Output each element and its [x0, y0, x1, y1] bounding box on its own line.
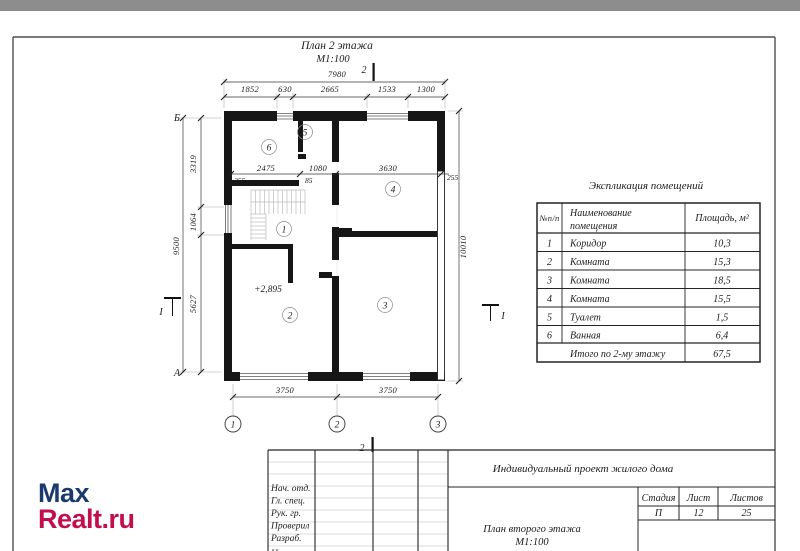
drawing-title: План второго этажа [482, 524, 581, 535]
section-marks: 2 2 I I [158, 63, 505, 454]
cell-num: 1 [547, 239, 552, 250]
explication-title: Экспликация помещений [589, 180, 704, 192]
drawing-scale: М1:100 [514, 537, 549, 548]
dims-top: 7980 1852 630 2665 1533 1300 [221, 69, 448, 108]
sheet-value: 12 [694, 508, 704, 519]
stage-label: Стадия [642, 493, 676, 504]
sheets-label: Листов [729, 493, 763, 504]
title-block: Индивидуальный проект жилого дома Стадия… [268, 450, 775, 551]
dim-label: 1852 [241, 84, 260, 94]
top-strip [0, 0, 800, 11]
staircase [251, 190, 305, 240]
dims-left: 3319 1064 5627 9500 Б А [171, 113, 224, 379]
plan-title: План 2 этажа [300, 40, 373, 52]
cell-name: Комната [569, 257, 610, 268]
dim-label: 3630 [378, 163, 398, 173]
drawing-sheet: План 2 этажа М1:100 [0, 0, 800, 551]
role-label: Разраб. [270, 533, 302, 544]
section-label: I [500, 311, 505, 322]
project-name: Индивидуальный проект жилого дома [492, 463, 674, 475]
dim-label: 1533 [378, 84, 396, 94]
dim-wall-thickness: 255 [447, 173, 459, 182]
dim-small: 255 [234, 176, 246, 185]
stage-value: П [654, 508, 663, 519]
table-row: 5 Туалет 1,5 [547, 313, 728, 324]
role-label: Гл. спец. [270, 497, 305, 507]
dim-right-overall: 10010 [458, 235, 468, 258]
interior-walls [231, 121, 437, 372]
table-row: 6 Ванная 6,4 [547, 331, 728, 342]
cell-name: Комната [569, 294, 610, 305]
cell-area: 18,5 [713, 276, 731, 287]
axis-number: 2 [335, 421, 340, 431]
cell-area: 6,4 [716, 331, 729, 342]
logo-word-realt: Realt.ru [38, 504, 135, 534]
dim-left-overall: 9500 [171, 236, 181, 255]
section-label: 2 [362, 65, 367, 76]
dim-label: 5627 [188, 294, 198, 313]
room-number: 3 [382, 302, 388, 312]
section-label: I [158, 307, 163, 318]
axis-number: 1 [231, 421, 236, 431]
cell-name: Туалет [570, 313, 601, 324]
cell-area: 10,3 [713, 239, 731, 250]
dim-label: 630 [278, 84, 292, 94]
cell-num: 4 [547, 294, 552, 305]
elevation-mark: +2,895 [254, 285, 282, 295]
role-label: Нач. отд. [270, 483, 311, 494]
col-header-num: №п/п [538, 213, 559, 223]
col-header-name: помещения [570, 221, 618, 232]
total-value: 67,5 [713, 349, 731, 360]
title-block-roles: Нач. отд. Гл. спец. Рук. гр. Проверил Ра… [270, 483, 311, 551]
dim-label: 3750 [378, 385, 398, 395]
room-numbers: 1 2 3 4 5 6 [262, 125, 401, 323]
sheet-label: Лист [686, 493, 710, 504]
col-header-name: Наименование [569, 208, 632, 219]
cell-name: Ванная [570, 331, 601, 342]
role-label: Рук. гр. [270, 509, 301, 519]
table-row: 2 Комната 15,3 [547, 257, 731, 268]
room-number: 5 [303, 129, 308, 139]
dims-bottom: 3750 3750 1 2 3 [225, 384, 446, 432]
dim-label: 2475 [257, 163, 275, 173]
room-number: 4 [391, 186, 396, 196]
cell-area: 1,5 [716, 313, 729, 324]
dim-label: 2665 [321, 84, 339, 94]
dim-label: 1300 [417, 84, 436, 94]
section-label: 2 [360, 443, 365, 454]
explication-table: Экспликация помещений №п/п Наименование … [537, 180, 760, 362]
axis-number: 3 [435, 421, 441, 431]
sheets-value: 25 [742, 508, 752, 519]
table-row: 3 Комната 18,5 [546, 276, 731, 287]
role-label: Проверил [270, 522, 309, 532]
dim-label: 3750 [275, 385, 295, 395]
dim-label: 1064 [188, 212, 198, 231]
cell-num: 5 [547, 313, 552, 324]
right-wall-double [438, 171, 445, 380]
room-number: 6 [267, 144, 272, 154]
plan-scale: М1:100 [315, 54, 350, 65]
cell-area: 15,5 [713, 294, 731, 305]
room-number: 1 [282, 226, 287, 236]
total-label: Итого по 2-му этажу [569, 349, 666, 360]
floor-plan: План 2 этажа М1:100 [158, 40, 505, 454]
col-header-area: Площадь, м² [694, 213, 749, 224]
table-total-row: Итого по 2-му этажу 67,5 [569, 349, 731, 360]
axis-letter-a: А [173, 368, 181, 379]
axis-letter-b: Б [173, 113, 180, 124]
dim-label: 1080 [309, 163, 328, 173]
cell-name: Комната [569, 276, 610, 287]
room-number: 2 [288, 312, 293, 322]
dims-right: 10010 255 [447, 108, 468, 384]
logo: Max Realt.ru [38, 478, 135, 534]
dim-small: 85 [305, 176, 313, 185]
cell-num: 2 [547, 257, 552, 268]
table-row: 1 Коридор 10,3 [547, 239, 731, 250]
dim-label: 3319 [188, 154, 198, 174]
table-row: 4 Комната 15,5 [547, 294, 731, 305]
cell-num: 6 [547, 331, 552, 342]
cell-area: 15,3 [713, 257, 731, 268]
cell-num: 3 [546, 276, 552, 287]
cell-name: Коридор [569, 239, 606, 250]
dim-top-overall: 7980 [328, 69, 347, 79]
